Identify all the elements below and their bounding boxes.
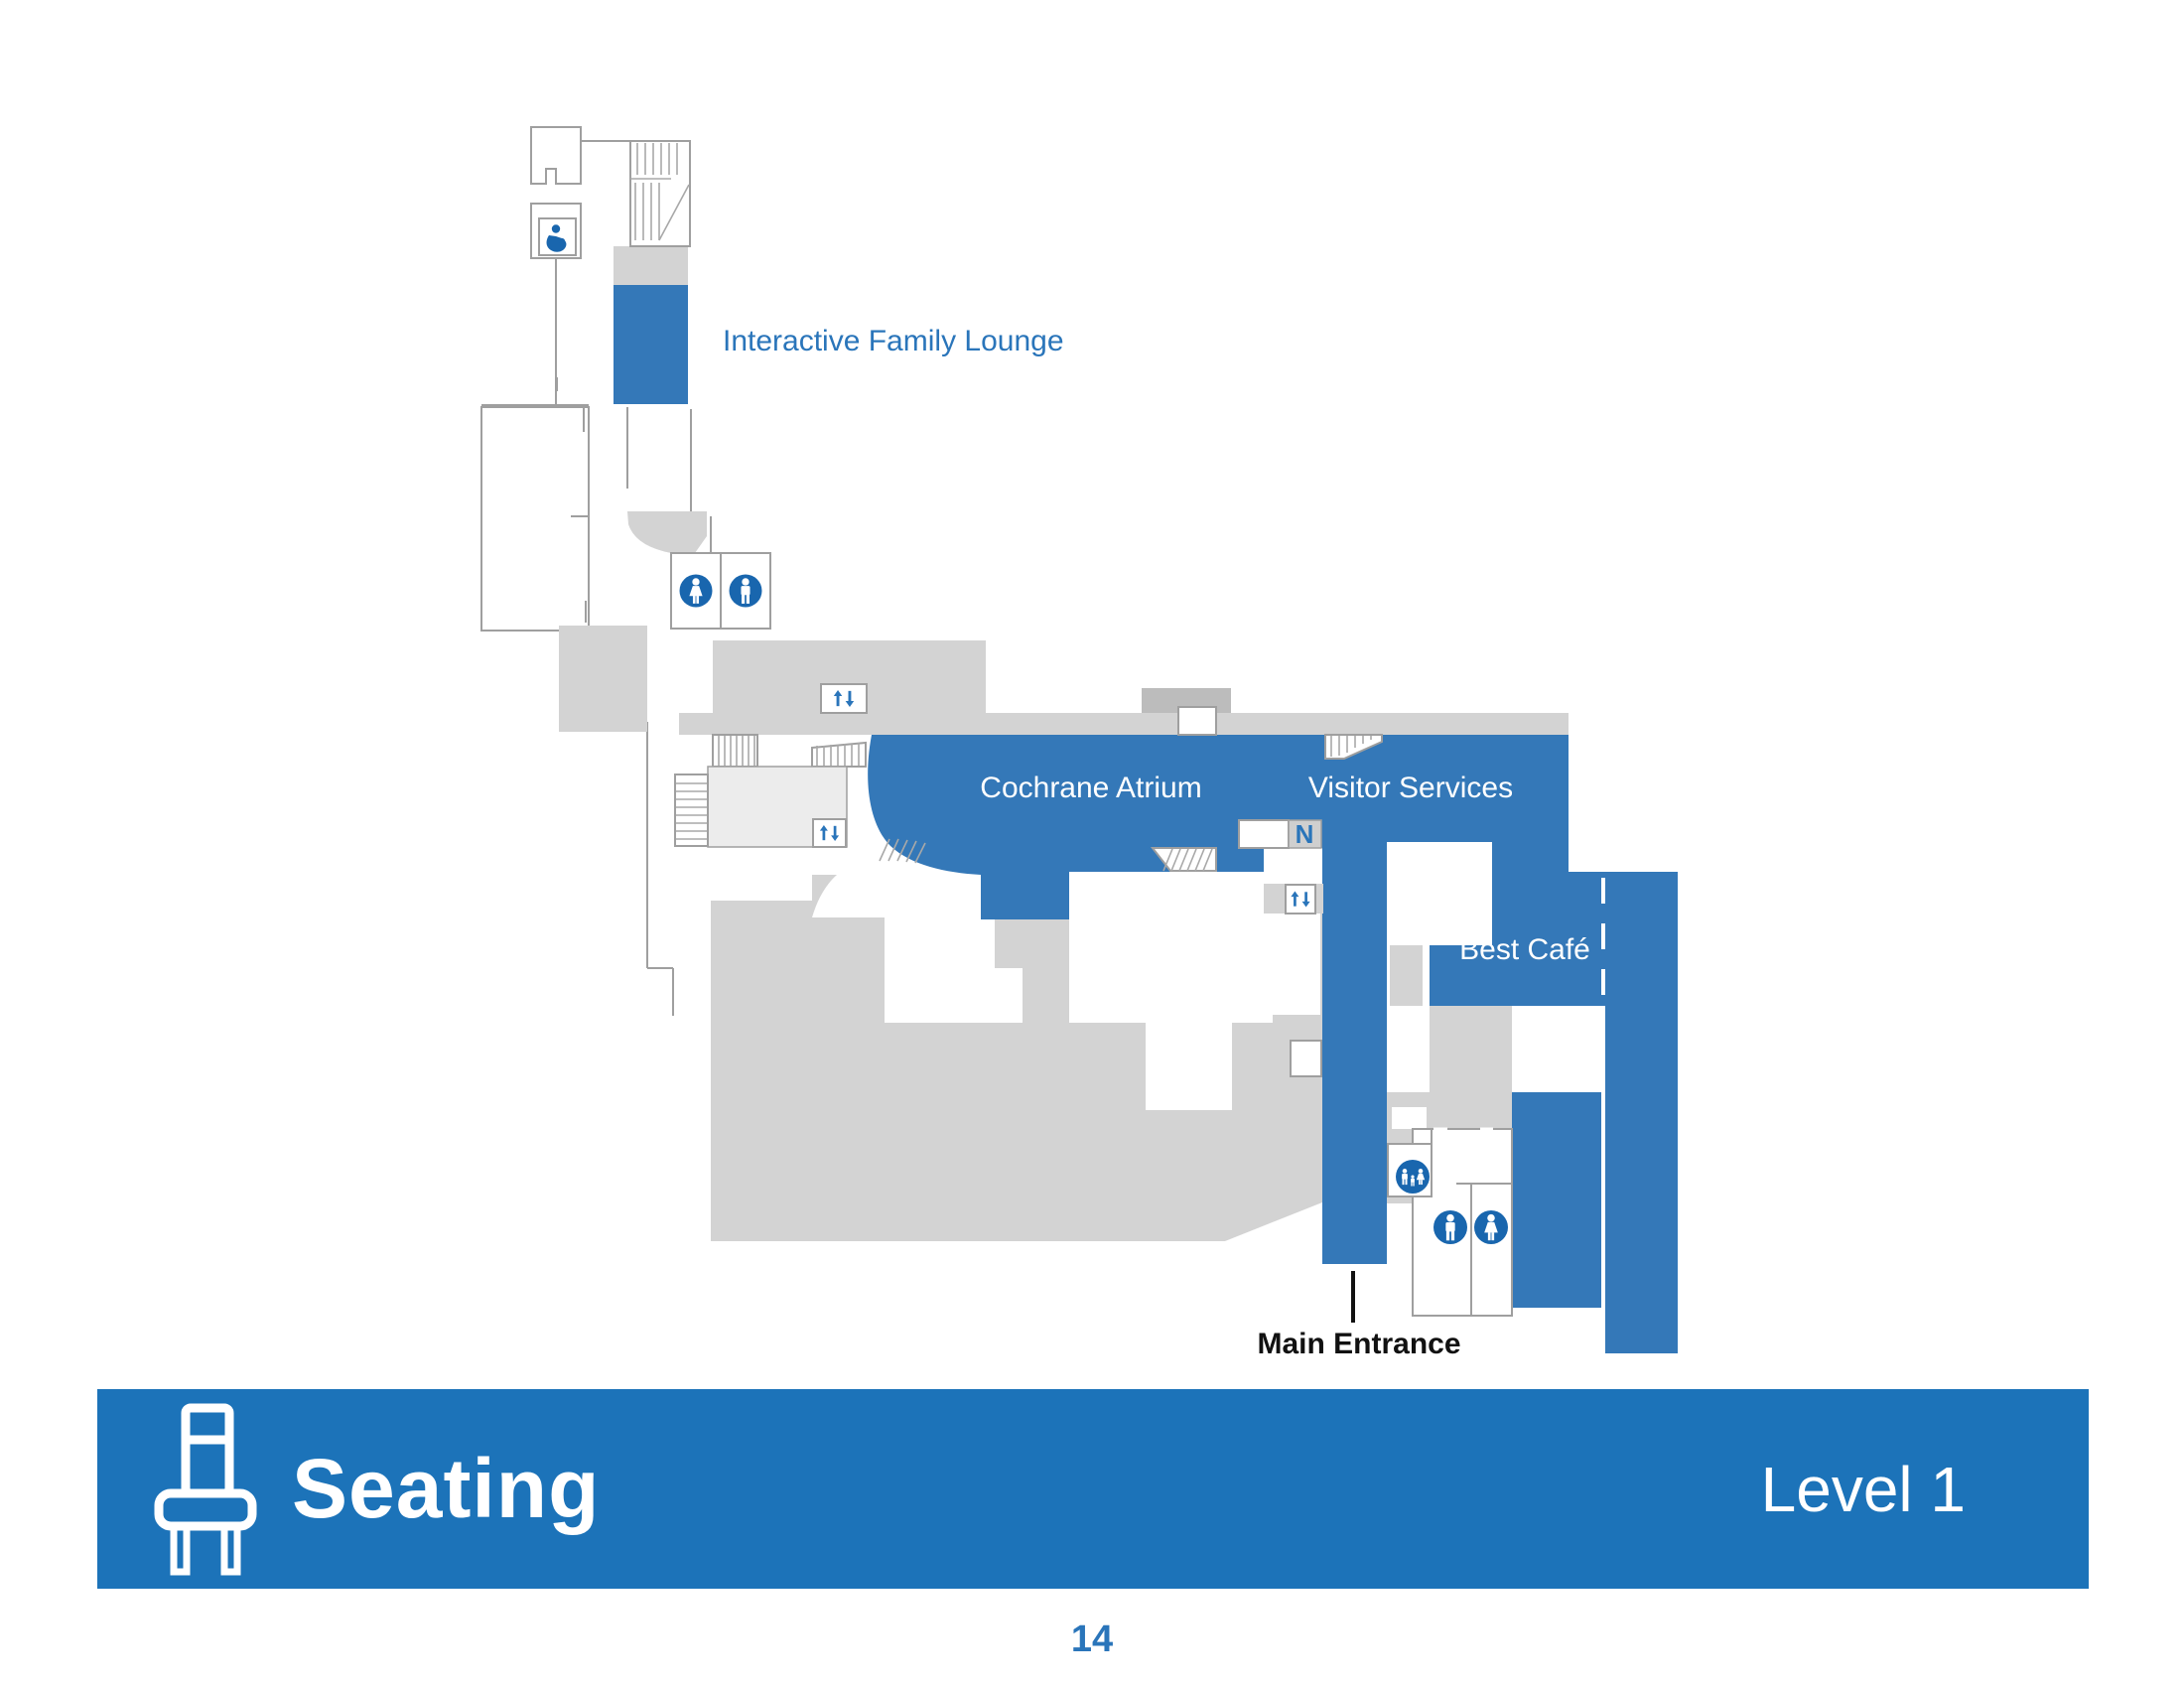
stairways: [630, 141, 866, 847]
floor-map-page: N: [0, 0, 2184, 1688]
page-title: Seating: [292, 1441, 600, 1537]
women-restroom-icon: [1474, 1210, 1508, 1244]
chair-icon: [152, 1403, 259, 1576]
elevator-icon: [1286, 885, 1315, 914]
svg-text:N: N: [1296, 819, 1314, 849]
women-restroom-icon: [680, 575, 713, 608]
main-entrance-label: Main Entrance: [1257, 1328, 1460, 1360]
stairs-icon: [713, 735, 757, 767]
visitor-services-label: Visitor Services: [1308, 772, 1513, 804]
cafe-left-wing: [1512, 1092, 1601, 1308]
stairs-icon: [630, 141, 690, 246]
page-number: 14: [1071, 1618, 1113, 1661]
men-restroom-icon: [1433, 1210, 1467, 1244]
family-lounge-label: Interactive Family Lounge: [723, 325, 1064, 357]
elevator-icon: [821, 684, 867, 713]
escalator-icon: N: [1239, 819, 1321, 849]
legend-banner: Seating Level 1: [97, 1389, 2089, 1589]
family-restroom-icon: [1396, 1160, 1430, 1194]
stairs-icon: [812, 743, 866, 767]
stairs-icon: [675, 774, 708, 846]
elevator-icon: [813, 819, 846, 847]
cafe-right-wing: [1605, 1006, 1678, 1353]
atrium-label: Cochrane Atrium: [980, 772, 1201, 804]
level-indicator: Level 1: [1761, 1453, 1966, 1526]
family-lounge-area: [614, 285, 688, 404]
men-restroom-icon: [730, 575, 762, 608]
nursing-room-icon: [539, 218, 576, 255]
cafe-label: Best Café: [1459, 933, 1590, 966]
